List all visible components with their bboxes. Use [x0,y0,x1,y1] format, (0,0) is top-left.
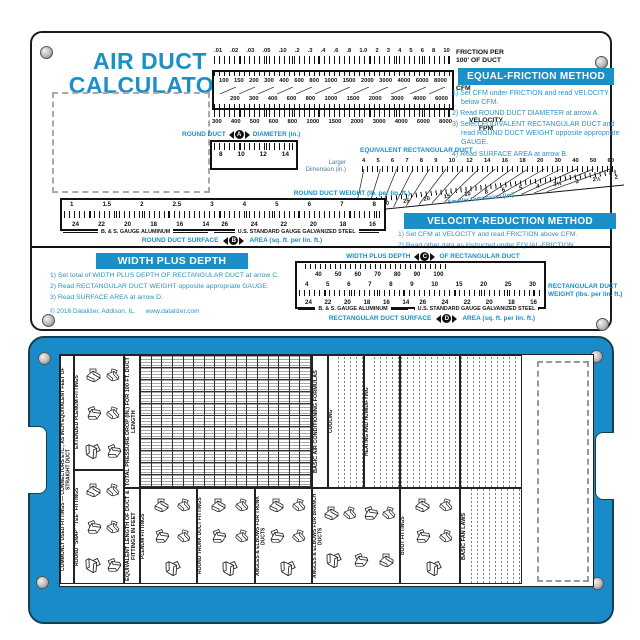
angles-branch-panel: ANGLES & ELBOWS FOR BRANCH DUCTS [312,488,400,584]
copyright-text: © 2016 Datalizer, Addison, IL. [50,308,136,315]
larger-dimension-values: 45678910121416182030405060 [362,158,614,164]
duct-fitting-diagram [323,505,340,520]
round-trunk-diagrams [207,489,254,583]
wpd-weight-ticks [299,290,542,296]
equal-friction-header: EQUAL-FRICTION METHOD [458,68,614,85]
alum-gauge-label: B. & S. GAUGE ALUMINUM [60,229,211,235]
gauge-rows: 242220181614 262422201816 [62,221,384,229]
cfm-slider-scale[interactable]: 1001502003004006008001000150020003000400… [212,70,454,110]
duct-fitting-diagram [378,552,395,567]
duct-fitting-diagram [277,555,300,579]
diameter-values: 8101214 [212,150,296,158]
equivalent-length-label-strip: EQUIVALENT LENGTH OF DUCT & FITTINGS IN … [124,488,140,584]
round-duct-weight-scale[interactable]: 11.522.5345678 242220181614 262422201816 [60,198,386,231]
wpd-alum-label: B. & S. GAUGE ALUMINUM [295,306,411,312]
duct-fitting-diagram [219,555,242,579]
cooling-formulas-panel: COOLING [328,355,364,488]
wpd-scale-box[interactable]: 405060708090100 4567891015202530 2422201… [295,261,546,309]
friction-scale-label: FRICTION PER 100' OF DUCT [456,49,546,65]
slider-notch-right[interactable] [595,432,614,500]
cfm-ticks-top [214,72,452,76]
duct-fitting-diagram [83,517,104,537]
wpd-bracket-labels: B. & S. GAUGE ALUMINUM U.S. STANDARD GAU… [295,306,542,312]
duct-fitting-diagram [103,554,124,574]
slider-notch-left[interactable] [28,426,47,494]
slide-window[interactable] [52,92,210,193]
angles-trunk-panel: ANGLES & ELBOWS FOR TRUNK DUCTS [255,488,312,584]
duct-fitting-diagram [290,496,309,514]
duct-fitting-diagram [380,504,399,522]
copyright-row: © 2016 Datalizer, Addison, IL. www.datal… [50,308,200,315]
duct-fitting-diagram [210,497,227,512]
pressure-drop-table [140,355,312,488]
duct-fitting-diagram [266,526,287,546]
cooling-formulas-text [338,356,363,487]
duct-fitting-diagram [82,438,105,462]
duct-fitting-diagram [153,497,170,512]
back-rivet-top-left [38,352,51,365]
wpd-top-ticks [305,264,448,269]
wpd-steel-label: U.S. STANDARD GAUGE GALVANIZED STEEL [411,306,542,312]
wpd-weight-values: 4567891015202530 [297,281,544,288]
cfm-ticks-bottom [214,104,452,108]
cfm-tie-lines [214,87,452,94]
snap-tee-diagrams [84,471,123,583]
fan-laws-panel: BASIC FAN LAWS [460,488,522,584]
section-divider [32,246,610,248]
duct-fitting-diagram [233,496,252,514]
pressure-drop-label-strip: TOTAL PRESSURE DROP (IN.) FOR 100 FT. DU… [124,355,140,488]
extended-plenum-panel: EXTENDED PLENUM FITTINGS [74,355,124,470]
commonly-used-fittings-strip: COMMONLY USED FITTINGS — CONNECTORS ETC.… [60,355,74,584]
round-duct-weight-label: ROUND DUCT WEIGHT (lb. per lin. ft.) [202,190,410,197]
gauge-bracket-labels: B. & S. GAUGE ALUMINUM U.S. STANDARD GAU… [60,229,382,235]
weight-values: 11.522.5345678 [62,200,384,208]
duct-fitting-diagram [268,497,285,512]
duct-fitting-diagram [208,526,229,546]
website-link[interactable]: www.datalizer.com [146,308,200,315]
plenum-fittings-diagrams [150,489,196,583]
duct-fitting-diagram [83,402,104,422]
duct-fitting-diagram [82,552,105,576]
width-plus-depth-header: WIDTH PLUS DEPTH [96,253,248,269]
duct-fitting-diagram [151,526,172,546]
boot-fittings-panel: BOOT FITTINGS [400,488,460,584]
round-duct-surface-label: ROUND DUCT SURFACE B AREA (sq. ft. per l… [72,236,392,245]
duct-fitting-diagram [104,366,123,384]
duct-fitting-diagram [412,526,433,546]
larger-dimension-label: Larger Dimension (in.) [284,160,346,174]
duct-fitting-diagram [85,367,102,382]
duct-fitting-diagram [437,496,456,514]
duct-fitting-diagram [104,518,123,536]
misc-formulas-panel [460,355,522,488]
weight-ticks [64,211,382,218]
back-card-content: COMMONLY USED FITTINGS — CONNECTORS ETC.… [59,354,594,587]
plenum-fittings-panel: PLENUM FITTINGS [140,488,197,584]
calculator-front-card: AIR DUCT CALCULATOR .01.02.03.05.10.2.3.… [30,31,612,331]
cfm-values-row2: 200300400600800100015002000300040006000 [214,96,452,102]
duct-fitting-diagram [85,482,102,497]
duct-fitting-diagram [162,555,185,579]
back-slide-window[interactable] [537,361,589,582]
duct-fitting-diagram [290,527,309,545]
friction-scale-ticks [214,56,450,64]
arrow-c-badge: C [414,252,435,261]
friction-scale-values: .01.02.03.05.10.2.3.4.6.81.023456810 [214,48,450,54]
rivet-bottom-right [596,318,609,331]
heating-formulas-text [374,356,399,487]
rivet-bottom-left [42,314,55,327]
arrow-a-badge: A [229,130,250,139]
duct-fitting-diagram [437,527,456,545]
boot-fittings-diagrams [410,489,459,583]
snap-tee-panel: ROUND "SNAP" "TEE" FITTINGS [74,470,124,584]
psychrometric-formulas-panel [400,355,460,488]
arrow-b-badge: B [223,236,244,245]
steel-gauge-values: 262422201816 [215,221,384,229]
duct-fitting-diagram [175,496,194,514]
width-plus-depth-steps: 1) Set total of WIDTH PLUS DEPTH OF RECT… [50,272,322,304]
angles-trunk-diagrams [265,489,311,583]
duct-fitting-diagram [423,555,446,579]
heating-formulas-panel: HEATING AND HUMIDIFYING [364,355,400,488]
duct-fitting-diagram [414,497,431,512]
duct-fitting-diagram [104,481,123,499]
duct-fitting-diagram [175,527,194,545]
duct-fitting-diagram [103,440,124,460]
duct-fitting-diagram [323,548,346,572]
arrow-d-badge: D [436,314,457,323]
velocity-scale-values: 3004005006008001000150020003000400060008… [212,119,452,125]
steel-gauge-label: U.S. STANDARD GAUGE GALVANIZED STEEL [211,229,382,235]
diameter-ticks [214,143,294,150]
duct-fitting-diagram [342,504,361,522]
velocity-reduction-steps: 1) Set CFM at VELOCITY and read FRICTION… [398,231,626,253]
cfm-values-row1: 1001502003004006008001000150020003000400… [214,78,452,84]
duct-fitting-diagram [233,527,252,545]
velocity-reduction-header: VELOCITY-REDUCTION METHOD [404,213,616,229]
rect-duct-weight-label: RECTANGULAR DUCT WEIGHT (lbs. per lin. f… [548,283,628,299]
equivalent-rect-header: EQUIVALENT RECTANGULAR DUCT [360,147,473,154]
alum-gauge-values: 242220181614 [62,221,215,229]
extended-plenum-diagrams [84,356,123,469]
fan-laws-text [471,489,521,583]
back-rivet-bottom-left [36,576,49,589]
duct-fitting-diagram [350,549,371,569]
wpd-scale-title: WIDTH PLUS DEPTH C OF RECTANGULAR DUCT [308,252,558,261]
wpd-top-values: 405060708090100 [297,272,443,278]
rect-duct-surface-label: RECTANGULAR DUCT SURFACE D AREA (sq. ft.… [302,314,562,323]
round-trunk-panel: ROUND TRUNK DUCT FITTINGS [197,488,255,584]
duct-fitting-diagram [359,502,380,522]
velocity-scale-ticks [214,109,450,117]
round-duct-diameter-label: ROUND DUCT A DIAMETER (in.) [182,130,300,139]
equal-friction-steps: 1) Set CFM under FRICTION and read VELOC… [452,89,624,161]
duct-fitting-diagram [104,404,123,422]
ac-formulas-header-strip: BASIC AIR CONDITIONING FORMULAS [312,355,328,488]
angles-branch-diagrams [322,489,399,583]
calculator-back-card: COMMONLY USED FITTINGS — CONNECTORS ETC.… [28,336,614,624]
